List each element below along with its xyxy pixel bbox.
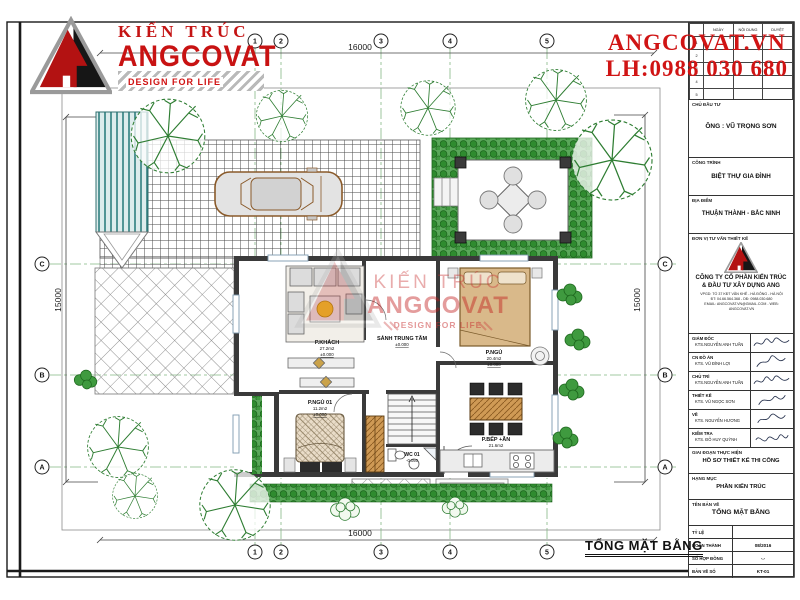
signature-icon xyxy=(753,355,791,369)
sheet-name-label: TÊN BẢN VẼ xyxy=(689,500,793,507)
company-name-line1: CÔNG TY CỔ PHẦN KIẾN TRÚC xyxy=(689,275,793,283)
footer-row: SỐ HỢP ĐỒNG-.- xyxy=(689,552,793,565)
category-label: HẠNG MỤC xyxy=(689,474,793,481)
svg-text:5: 5 xyxy=(545,39,549,46)
room-label: SẢNH TRUNG TÂM xyxy=(377,335,428,342)
signature-icon xyxy=(753,393,791,407)
svg-text:A: A xyxy=(662,465,667,472)
logo-triangle-icon xyxy=(30,16,112,96)
titleblock-footer: TỶ LỆ HOÀN THÀNH08/2016 SỐ HỢP ĐỒNG-.- B… xyxy=(689,526,793,578)
svg-text:2: 2 xyxy=(279,550,283,557)
room-label: P.NGỦ 01 xyxy=(308,399,332,406)
svg-text:±0.000: ±0.000 xyxy=(313,412,327,417)
svg-text:1: 1 xyxy=(253,550,257,557)
car xyxy=(215,168,342,220)
category-section: HẠNG MỤC PHẦN KIẾN TRÚC xyxy=(689,474,793,500)
svg-text:21.6m2: 21.6m2 xyxy=(489,443,504,448)
footer-row: HOÀN THÀNH08/2016 xyxy=(689,539,793,552)
room-label: P.BẾP +ĂN xyxy=(482,436,510,443)
svg-text:B: B xyxy=(662,373,667,380)
stage-label: GIAI ĐOẠN THỰC HIỆN xyxy=(689,448,793,455)
svg-text:±0.000: ±0.000 xyxy=(487,362,501,367)
signer-row: VẼKTS. NGUYỄN HƯƠNG xyxy=(689,410,793,429)
stage-value: HỒ SƠ THIẾT KẾ THI CÔNG xyxy=(689,458,793,464)
logo-tagline: DESIGN FOR LIFE xyxy=(126,77,223,87)
drawing-sheet: 16000 16000 15000 15000 1 2 3 4 5 1 2 3 … xyxy=(0,0,800,600)
svg-text:20.4m2: 20.4m2 xyxy=(487,356,502,361)
svg-text:5: 5 xyxy=(545,550,549,557)
signer-row: CN ĐỒ ÁNKTS. VŨ ĐÌNH LỢI xyxy=(689,353,793,372)
svg-text:±0.000: ±0.000 xyxy=(395,342,409,347)
room-label: P.NGỦ xyxy=(486,349,503,356)
footer-row: BẢN VẼ SỐKT-01 xyxy=(689,565,793,578)
svg-text:2: 2 xyxy=(279,39,283,46)
project-section: CÔNG TRÌNH BIỆT THỰ GIA ĐÌNH xyxy=(689,158,793,196)
investor-section: CHỦ ĐẦU TƯ ÔNG : VŨ TRỌNG SƠN xyxy=(689,100,793,158)
project-label: CÔNG TRÌNH xyxy=(689,158,793,165)
consultant-logo-icon xyxy=(724,242,758,273)
logo-brand-name: ANGCOVAT xyxy=(118,42,277,71)
logo-tagline-band: DESIGN FOR LIFE xyxy=(118,71,264,91)
svg-text:C: C xyxy=(39,262,44,269)
website-text: ANGCOVAT.VN xyxy=(606,30,788,56)
rev-row: 5 xyxy=(690,89,793,101)
signer-row: CHỦ TRÌKTS.NGUYỄN ANH TUẤN xyxy=(689,372,793,391)
svg-text:27.2m2: 27.2m2 xyxy=(320,346,335,351)
investor-name: ÔNG : VŨ TRỌNG SƠN xyxy=(689,123,793,130)
svg-text:-0.050: -0.050 xyxy=(406,458,419,463)
svg-text:3: 3 xyxy=(379,39,383,46)
dim-left: 15000 xyxy=(53,288,63,312)
signer-row: KIỂM TRAKTS. ĐỖ HUY QUỲNH xyxy=(689,429,793,448)
signature-icon xyxy=(753,374,791,388)
svg-text:4: 4 xyxy=(448,39,452,46)
signature-section: GIÁM ĐỐCKTS.NGUYỄN ANH TUẤN CN ĐỒ ÁNKTS.… xyxy=(689,334,793,448)
consultant-label: ĐƠN VỊ TƯ VẤN THIẾT KẾ xyxy=(689,234,793,241)
dim-right: 15000 xyxy=(632,288,642,312)
project-name: BIỆT THỰ GIA ĐÌNH xyxy=(689,173,793,180)
phone-text: LH:0988 030 680 xyxy=(606,56,788,82)
location-name: THUẬN THÀNH - BẮC NINH xyxy=(689,211,793,217)
footer-row: TỶ LỆ xyxy=(689,526,793,539)
svg-text:11.2m2: 11.2m2 xyxy=(313,406,328,411)
company-name-line2: & ĐẦU TƯ XÂY DỰNG ANG xyxy=(689,283,793,291)
svg-text:B: B xyxy=(39,373,44,380)
svg-text:±0.000: ±0.000 xyxy=(320,352,334,357)
company-logo: KIẾN TRÚC ANGCOVAT DESIGN FOR LIFE xyxy=(30,16,265,98)
company-address3: EMAIL: ANGCOVAT.VN@GMAIL.COM - WEB: ANGC… xyxy=(692,302,791,312)
signature-icon xyxy=(753,431,791,445)
signer-row: THIẾT KẾKTS. VŨ NGỌC SƠN xyxy=(689,391,793,410)
title-block: NGÀY NỘI DUNG DUYỆT 1 2 3 4 5 CHỦ ĐẦU TƯ… xyxy=(688,22,794,577)
svg-text:3: 3 xyxy=(379,550,383,557)
location-section: ĐỊA ĐIỂM THUẬN THÀNH - BẮC NINH xyxy=(689,196,793,234)
svg-text:A: A xyxy=(39,465,44,472)
sheet-name-value: TỔNG MẶT BẰNG xyxy=(689,509,793,516)
category-value: PHẦN KIẾN TRÚC xyxy=(689,484,793,490)
svg-text:DESIGN FOR LIFE: DESIGN FOR LIFE xyxy=(394,320,483,330)
room-label: P.KHÁCH xyxy=(315,339,339,346)
svg-text:C: C xyxy=(662,262,667,269)
investor-label: CHỦ ĐẦU TƯ xyxy=(689,100,793,107)
drawing-title: TỔNG MẶT BẰNG xyxy=(585,538,703,557)
dim-bottom: 16000 xyxy=(348,528,372,538)
consultant-section: ĐƠN VỊ TƯ VẤN THIẾT KẾ CÔNG TY CỔ PHẦN K… xyxy=(689,234,793,334)
svg-text:ANGCOVAT: ANGCOVAT xyxy=(367,292,509,319)
signature-icon xyxy=(753,336,791,350)
svg-text:4: 4 xyxy=(448,550,452,557)
stairs xyxy=(388,394,436,444)
patio xyxy=(432,138,592,258)
dim-top: 16000 xyxy=(348,42,372,52)
signer-row: GIÁM ĐỐCKTS.NGUYỄN ANH TUẤN xyxy=(689,334,793,353)
stage-section: GIAI ĐOẠN THỰC HIỆN HỒ SƠ THIẾT KẾ THI C… xyxy=(689,448,793,474)
signature-icon xyxy=(753,412,791,426)
sheet-name-section: TÊN BẢN VẼ TỔNG MẶT BẰNG xyxy=(689,500,793,526)
contact-overlay: ANGCOVAT.VN LH:0988 030 680 xyxy=(606,30,788,82)
location-label: ĐỊA ĐIỂM xyxy=(689,196,793,203)
svg-text:KIẾN TRÚC: KIẾN TRÚC xyxy=(373,271,502,293)
